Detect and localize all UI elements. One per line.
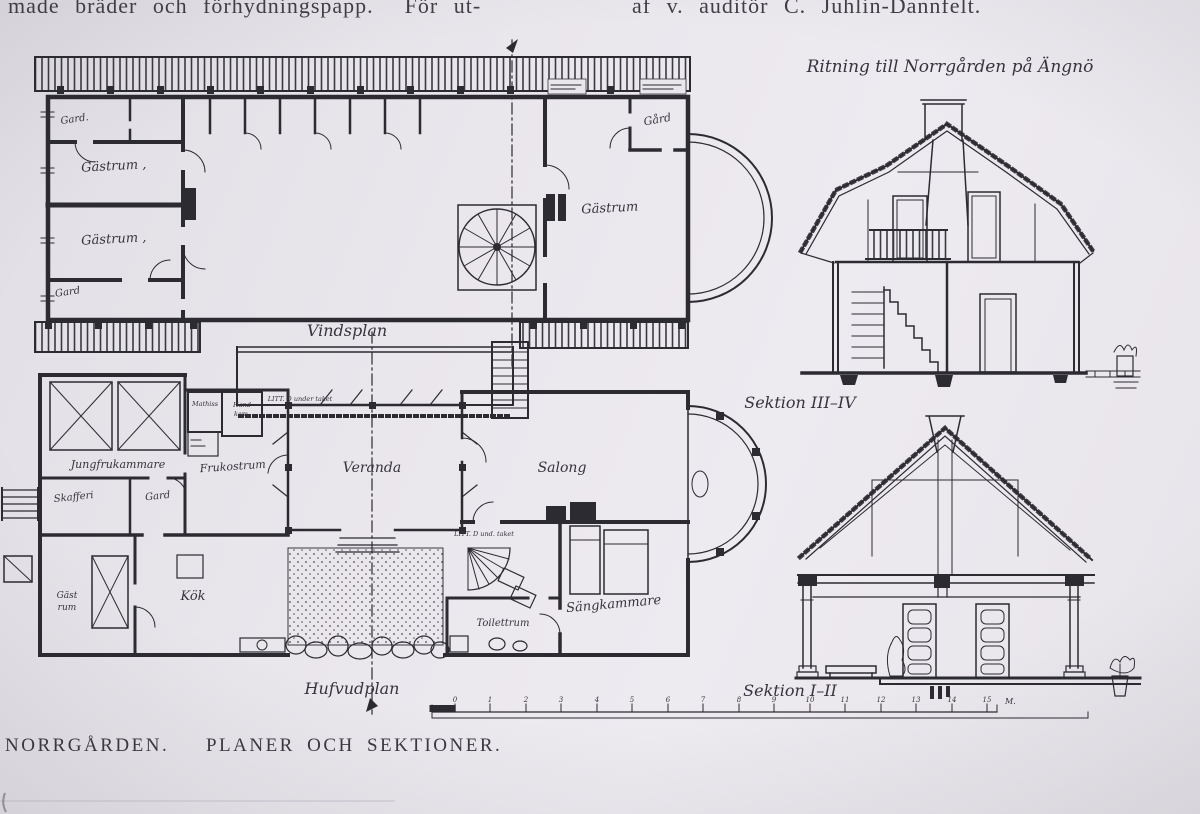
scale-tick-label: 13 [912, 696, 921, 704]
paper-marks [0, 793, 395, 812]
scale-tick-label: 4 [594, 696, 599, 704]
scale-tick-label: 10 [806, 696, 815, 704]
room-label-mathiss: Mathiss [191, 400, 219, 408]
scale-tick-label: 1 [488, 696, 492, 704]
scale-tick-label: 9 [772, 696, 777, 704]
room-label-sangkammare: Sängkammare [566, 593, 663, 616]
scale-tick-label: 5 [630, 696, 635, 704]
attic-top-hatched-band [35, 57, 690, 94]
attic-interior [836, 172, 1078, 262]
room-label-gard-bottom-left: Gard [54, 285, 80, 299]
chimney [926, 416, 964, 452]
scale-unit-label: M. [1004, 697, 1016, 706]
tiny-annotation-box [640, 79, 686, 94]
bench [826, 666, 876, 678]
attic-bay-window [688, 134, 772, 302]
room-label-skafferi: Skafferi [53, 490, 94, 505]
straight-staircase [492, 342, 528, 418]
chimney [921, 100, 968, 225]
chimney-block [546, 194, 566, 221]
main-left-wing [40, 382, 288, 655]
room-label-salong: Salong [538, 460, 587, 476]
roof [800, 428, 1092, 562]
spiral-staircase [458, 205, 536, 290]
terrace [286, 548, 449, 659]
scale-tick-label: 3 [559, 696, 564, 704]
gable-framing [872, 440, 1018, 575]
room-label-veranda: Veranda [343, 460, 401, 476]
room-label-frukostrum: Frukostrum [198, 458, 266, 476]
room-label-gard: Gard [145, 490, 171, 504]
room-label-kok: Kök [179, 589, 205, 604]
panel-door [903, 604, 936, 678]
salon-bay-window [688, 406, 766, 562]
section-upper-label: Sektion III–IV [744, 393, 857, 412]
scanned-drawing-page: made bräder och förhydningspapp. För ut-… [0, 0, 1200, 814]
room-label-gastrum-3: Gästrum [581, 200, 639, 218]
scale-tick-label: 7 [701, 696, 706, 704]
tiny-annotation-box [548, 79, 586, 94]
note-litt-d-1: LITT. D under taket [267, 395, 333, 403]
plant-stand [1114, 345, 1138, 388]
room-label-gastrum-2: Gästrum , [81, 230, 147, 248]
scale-tick-label: 2 [523, 696, 529, 704]
scale-tick-label: 14 [948, 696, 957, 704]
room-label-gastrum-2: rum [58, 603, 77, 613]
room-label-gastrum-1: Gästrum , [81, 157, 147, 175]
room-label-gard-top-left: Gard. [60, 112, 90, 127]
panel-door [976, 604, 1009, 678]
chimney-block [181, 188, 196, 220]
scale-tick-label: 12 [877, 696, 886, 704]
veranda-column-center [934, 576, 950, 597]
section-lower-label: Sektion I–II [743, 681, 837, 700]
room-label-handkammare-1: Hand [232, 401, 251, 409]
main-plan: Jungfrukammare Skafferi Gard Mathiss Han… [2, 332, 766, 714]
room-label-gard-top-right: Gård [643, 111, 672, 129]
scale-tick-label: 8 [737, 696, 742, 704]
scale-tick-label: 6 [666, 696, 671, 704]
room-label-gastrum-1: Gäst [57, 591, 78, 601]
room-label-toilettrum: Toilettrum [477, 618, 530, 629]
scale-tick-label: 0 [453, 696, 458, 704]
veranda-column-left [797, 574, 818, 678]
main-plan-label: Hufvudplan [304, 679, 400, 698]
scale-tick-label: 11 [841, 696, 850, 704]
potted-plant [1110, 656, 1135, 696]
room-label-jungfrukammare: Jungfrukammare [69, 458, 166, 471]
architectural-drawing: Ritning till Norrgården på Ängnö [0, 0, 1200, 814]
veranda-column-right [1064, 574, 1085, 678]
room-label-handkammare-2: kam. [234, 410, 250, 418]
entrance-steps [2, 488, 38, 582]
section-upper: Sektion III–IV [744, 100, 1140, 412]
section-lower: Sektion I–II [743, 416, 1140, 700]
sheet-title: Ritning till Norrgården på Ängnö [806, 56, 1094, 77]
attic-plan-label: Vindsplan [307, 321, 387, 340]
ground-floor [802, 262, 1140, 387]
scale-tick-label: 15 [983, 696, 992, 704]
plate-caption: NORRGÅRDEN. PLANER OCH SEKTIONER. [5, 735, 502, 757]
note-litt-d-2: LITT. D und. taket [453, 530, 514, 538]
attic-plan: Gard. Gästrum , Gästrum , Gard Gård Gäst… [35, 39, 772, 366]
